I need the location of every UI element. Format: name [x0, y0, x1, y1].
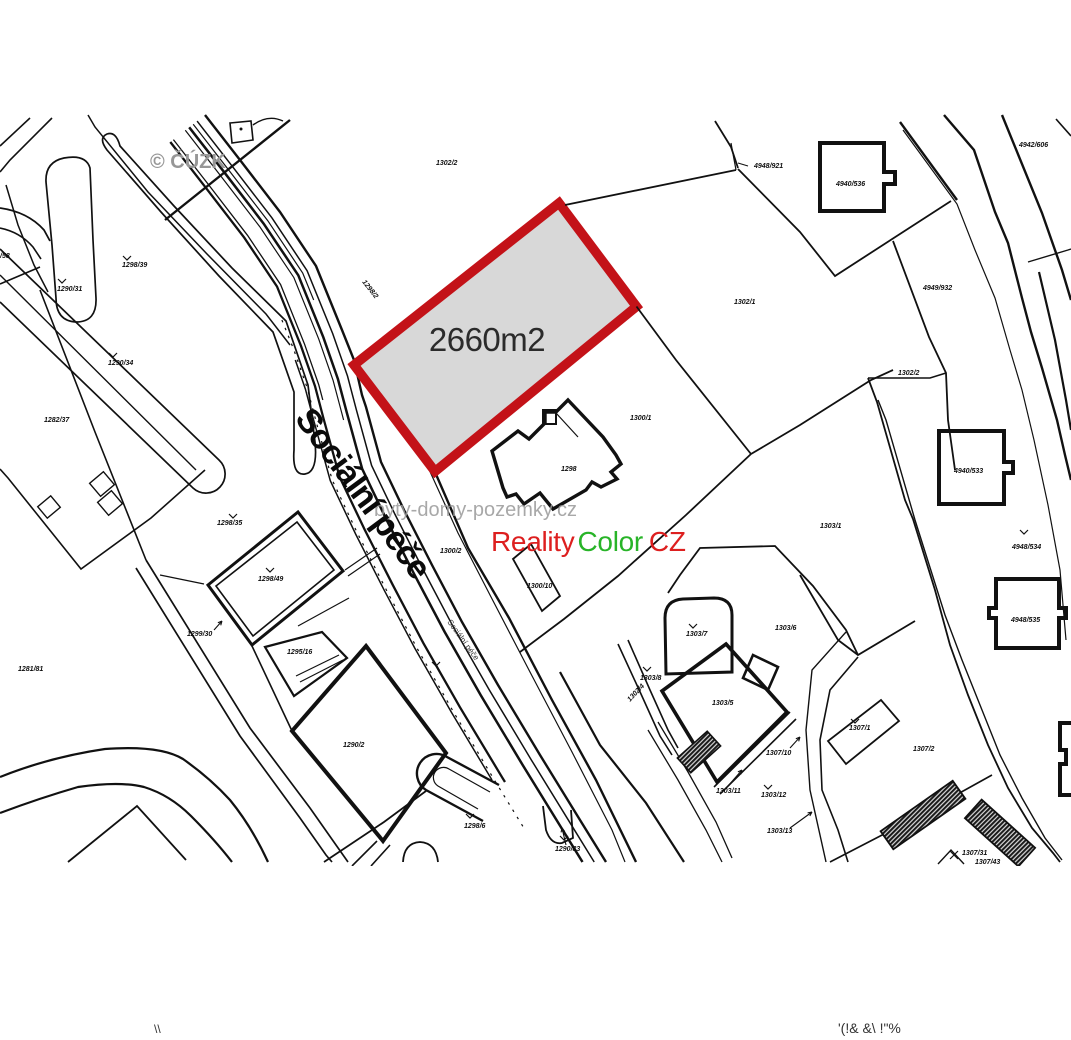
svg-text:1303/7: 1303/7: [686, 631, 709, 638]
svg-text:1290/34: 1290/34: [108, 360, 133, 367]
svg-text:1298/49: 1298/49: [258, 576, 283, 583]
svg-text:1281/81: 1281/81: [18, 666, 43, 673]
svg-text:1307/31: 1307/31: [962, 850, 987, 857]
svg-text:1307/2: 1307/2: [913, 746, 935, 753]
svg-text:4940/533: 4940/533: [953, 468, 983, 475]
svg-text:1303/12: 1303/12: [761, 792, 786, 799]
svg-text:1303/6: 1303/6: [775, 625, 797, 632]
svg-text:/58: /58: [0, 253, 10, 260]
svg-text:1302/2: 1302/2: [436, 160, 458, 167]
svg-text:1302/2: 1302/2: [898, 370, 920, 377]
svg-text:1298/39: 1298/39: [122, 262, 147, 269]
svg-text:1307/10: 1307/10: [766, 750, 791, 757]
svg-text:4948/535: 4948/535: [1010, 617, 1040, 624]
svg-text:4940/536: 4940/536: [835, 181, 865, 188]
svg-text:1303/5: 1303/5: [712, 700, 734, 707]
svg-text:1282/37: 1282/37: [44, 417, 70, 424]
svg-text:2660m2: 2660m2: [429, 321, 545, 358]
svg-text:1299/30: 1299/30: [187, 631, 212, 638]
svg-text:1290/31: 1290/31: [57, 286, 82, 293]
svg-text:1303/8: 1303/8: [640, 675, 662, 682]
svg-text:1303/13: 1303/13: [767, 828, 792, 835]
svg-text:1298/35: 1298/35: [217, 520, 242, 527]
svg-text:4949/932: 4949/932: [922, 285, 952, 292]
svg-text:1300/10: 1300/10: [527, 583, 552, 590]
svg-text:RealityColorCZ: RealityColorCZ: [491, 526, 686, 557]
svg-text:1300/1: 1300/1: [630, 415, 652, 422]
svg-text:4948/921: 4948/921: [753, 163, 783, 170]
svg-text:© ČÚZK: © ČÚZK: [150, 149, 226, 173]
svg-text:1307/1: 1307/1: [849, 725, 871, 732]
svg-text:1290/2: 1290/2: [343, 742, 365, 749]
svg-text:4948/534: 4948/534: [1011, 544, 1041, 551]
svg-text:1290/83: 1290/83: [555, 846, 580, 853]
svg-text:\\: \\: [154, 1022, 161, 1036]
svg-text:1307/43: 1307/43: [975, 859, 1000, 866]
svg-text:1303/1: 1303/1: [820, 523, 842, 530]
svg-text:1298/6: 1298/6: [464, 823, 486, 830]
svg-text:1303/11: 1303/11: [716, 788, 741, 795]
svg-text:1295/16: 1295/16: [287, 649, 312, 656]
svg-text:1302/1: 1302/1: [734, 299, 756, 306]
svg-text:4942/606: 4942/606: [1018, 142, 1048, 149]
svg-text:'(!& &\ !"%: '(!& &\ !"%: [838, 1020, 901, 1036]
svg-text:1298: 1298: [561, 466, 577, 473]
svg-text:1300/2: 1300/2: [440, 548, 462, 555]
